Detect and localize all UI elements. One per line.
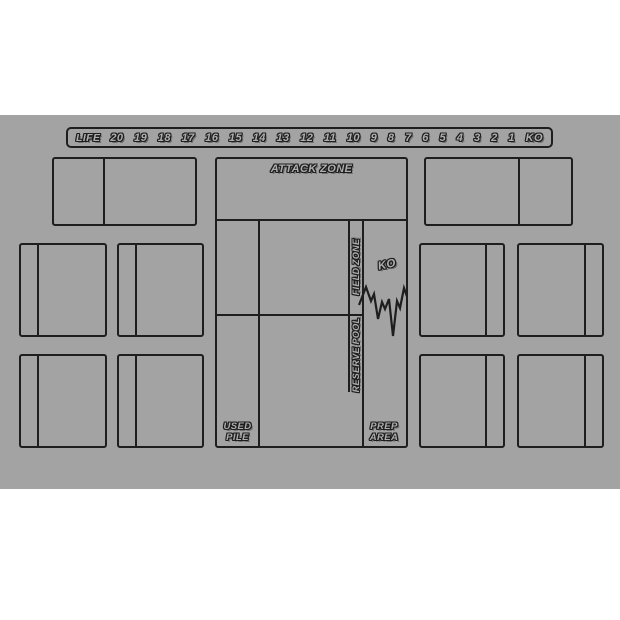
life-track-cell: 9 bbox=[371, 132, 378, 144]
life-track-cell: 12 bbox=[300, 132, 313, 144]
prep-area-label: PREP AREA bbox=[362, 422, 406, 443]
attack-zone-label: ATTACK ZONE bbox=[217, 163, 406, 175]
life-track-cell: 7 bbox=[405, 132, 412, 144]
playmat-image: LIFE 2019181716151413121110987654321KO bbox=[0, 0, 620, 620]
life-track: LIFE 2019181716151413121110987654321KO bbox=[66, 127, 553, 148]
center-panel: ATTACK ZONE FIELD ZONE RESERVE POOL KO U… bbox=[215, 157, 408, 448]
card-zone-right-bottom-2 bbox=[517, 354, 604, 448]
card-zone-left-bottom-1 bbox=[19, 354, 107, 448]
used-pile-column-line bbox=[258, 219, 260, 446]
life-track-cell: KO bbox=[526, 132, 543, 144]
label-strip-line bbox=[348, 219, 350, 392]
card-zone-strip-divider bbox=[485, 245, 487, 335]
top-left-dual-zone bbox=[52, 157, 197, 226]
used-pile-label: USED PILE bbox=[217, 422, 258, 443]
prep-area-line2: AREA bbox=[362, 433, 406, 444]
ko-column-line bbox=[362, 219, 364, 446]
card-zone-right-top-1 bbox=[419, 243, 505, 337]
life-track-cell: 13 bbox=[277, 132, 290, 144]
top-right-dual-zone-divider bbox=[518, 159, 520, 224]
life-track-cell: 15 bbox=[229, 132, 242, 144]
life-track-cell: 11 bbox=[324, 132, 336, 144]
top-left-dual-zone-divider bbox=[103, 159, 105, 224]
card-zone-right-bottom-1 bbox=[419, 354, 505, 448]
life-track-cell: 8 bbox=[388, 132, 395, 144]
card-zone-strip-divider bbox=[584, 356, 586, 446]
life-track-cell: 19 bbox=[134, 132, 147, 144]
card-zone-left-bottom-2 bbox=[117, 354, 204, 448]
card-zone-left-top-2 bbox=[117, 243, 204, 337]
reserve-pool-label: RESERVE POOL bbox=[351, 318, 361, 393]
used-pile-line1: USED bbox=[217, 422, 258, 433]
prep-area-line1: PREP bbox=[362, 422, 406, 433]
reserve-pool-top-line bbox=[217, 314, 364, 316]
life-track-cell: 4 bbox=[457, 132, 464, 144]
life-track-cell: 1 bbox=[508, 132, 515, 144]
used-pile-line2: PILE bbox=[217, 433, 258, 444]
attack-zone-bottom-line bbox=[217, 219, 406, 221]
life-track-cell: 14 bbox=[253, 132, 266, 144]
life-track-cell: 10 bbox=[347, 132, 360, 144]
life-track-cell: 5 bbox=[440, 132, 447, 144]
playmat-surface: LIFE 2019181716151413121110987654321KO bbox=[0, 115, 620, 489]
card-zone-strip-divider bbox=[37, 356, 39, 446]
life-track-cell: 2 bbox=[491, 132, 498, 144]
life-track-cell: 6 bbox=[422, 132, 429, 144]
ko-zone-label: KO bbox=[377, 257, 397, 272]
card-zone-strip-divider bbox=[135, 356, 137, 446]
life-track-label: LIFE bbox=[76, 132, 100, 144]
life-track-cell: 3 bbox=[474, 132, 481, 144]
life-track-cell: 17 bbox=[182, 132, 195, 144]
ko-burst-icon bbox=[217, 159, 406, 446]
top-right-dual-zone bbox=[424, 157, 573, 226]
life-track-cell: 20 bbox=[110, 132, 123, 144]
card-zone-strip-divider bbox=[135, 245, 137, 335]
card-zone-strip-divider bbox=[485, 356, 487, 446]
life-track-cell: 18 bbox=[158, 132, 171, 144]
card-zone-strip-divider bbox=[37, 245, 39, 335]
card-zone-left-top-1 bbox=[19, 243, 107, 337]
life-track-values: 2019181716151413121110987654321KO bbox=[110, 132, 543, 144]
card-zone-strip-divider bbox=[584, 245, 586, 335]
field-zone-label: FIELD ZONE bbox=[351, 239, 361, 296]
card-zone-right-top-2 bbox=[517, 243, 604, 337]
life-track-cell: 16 bbox=[205, 132, 218, 144]
